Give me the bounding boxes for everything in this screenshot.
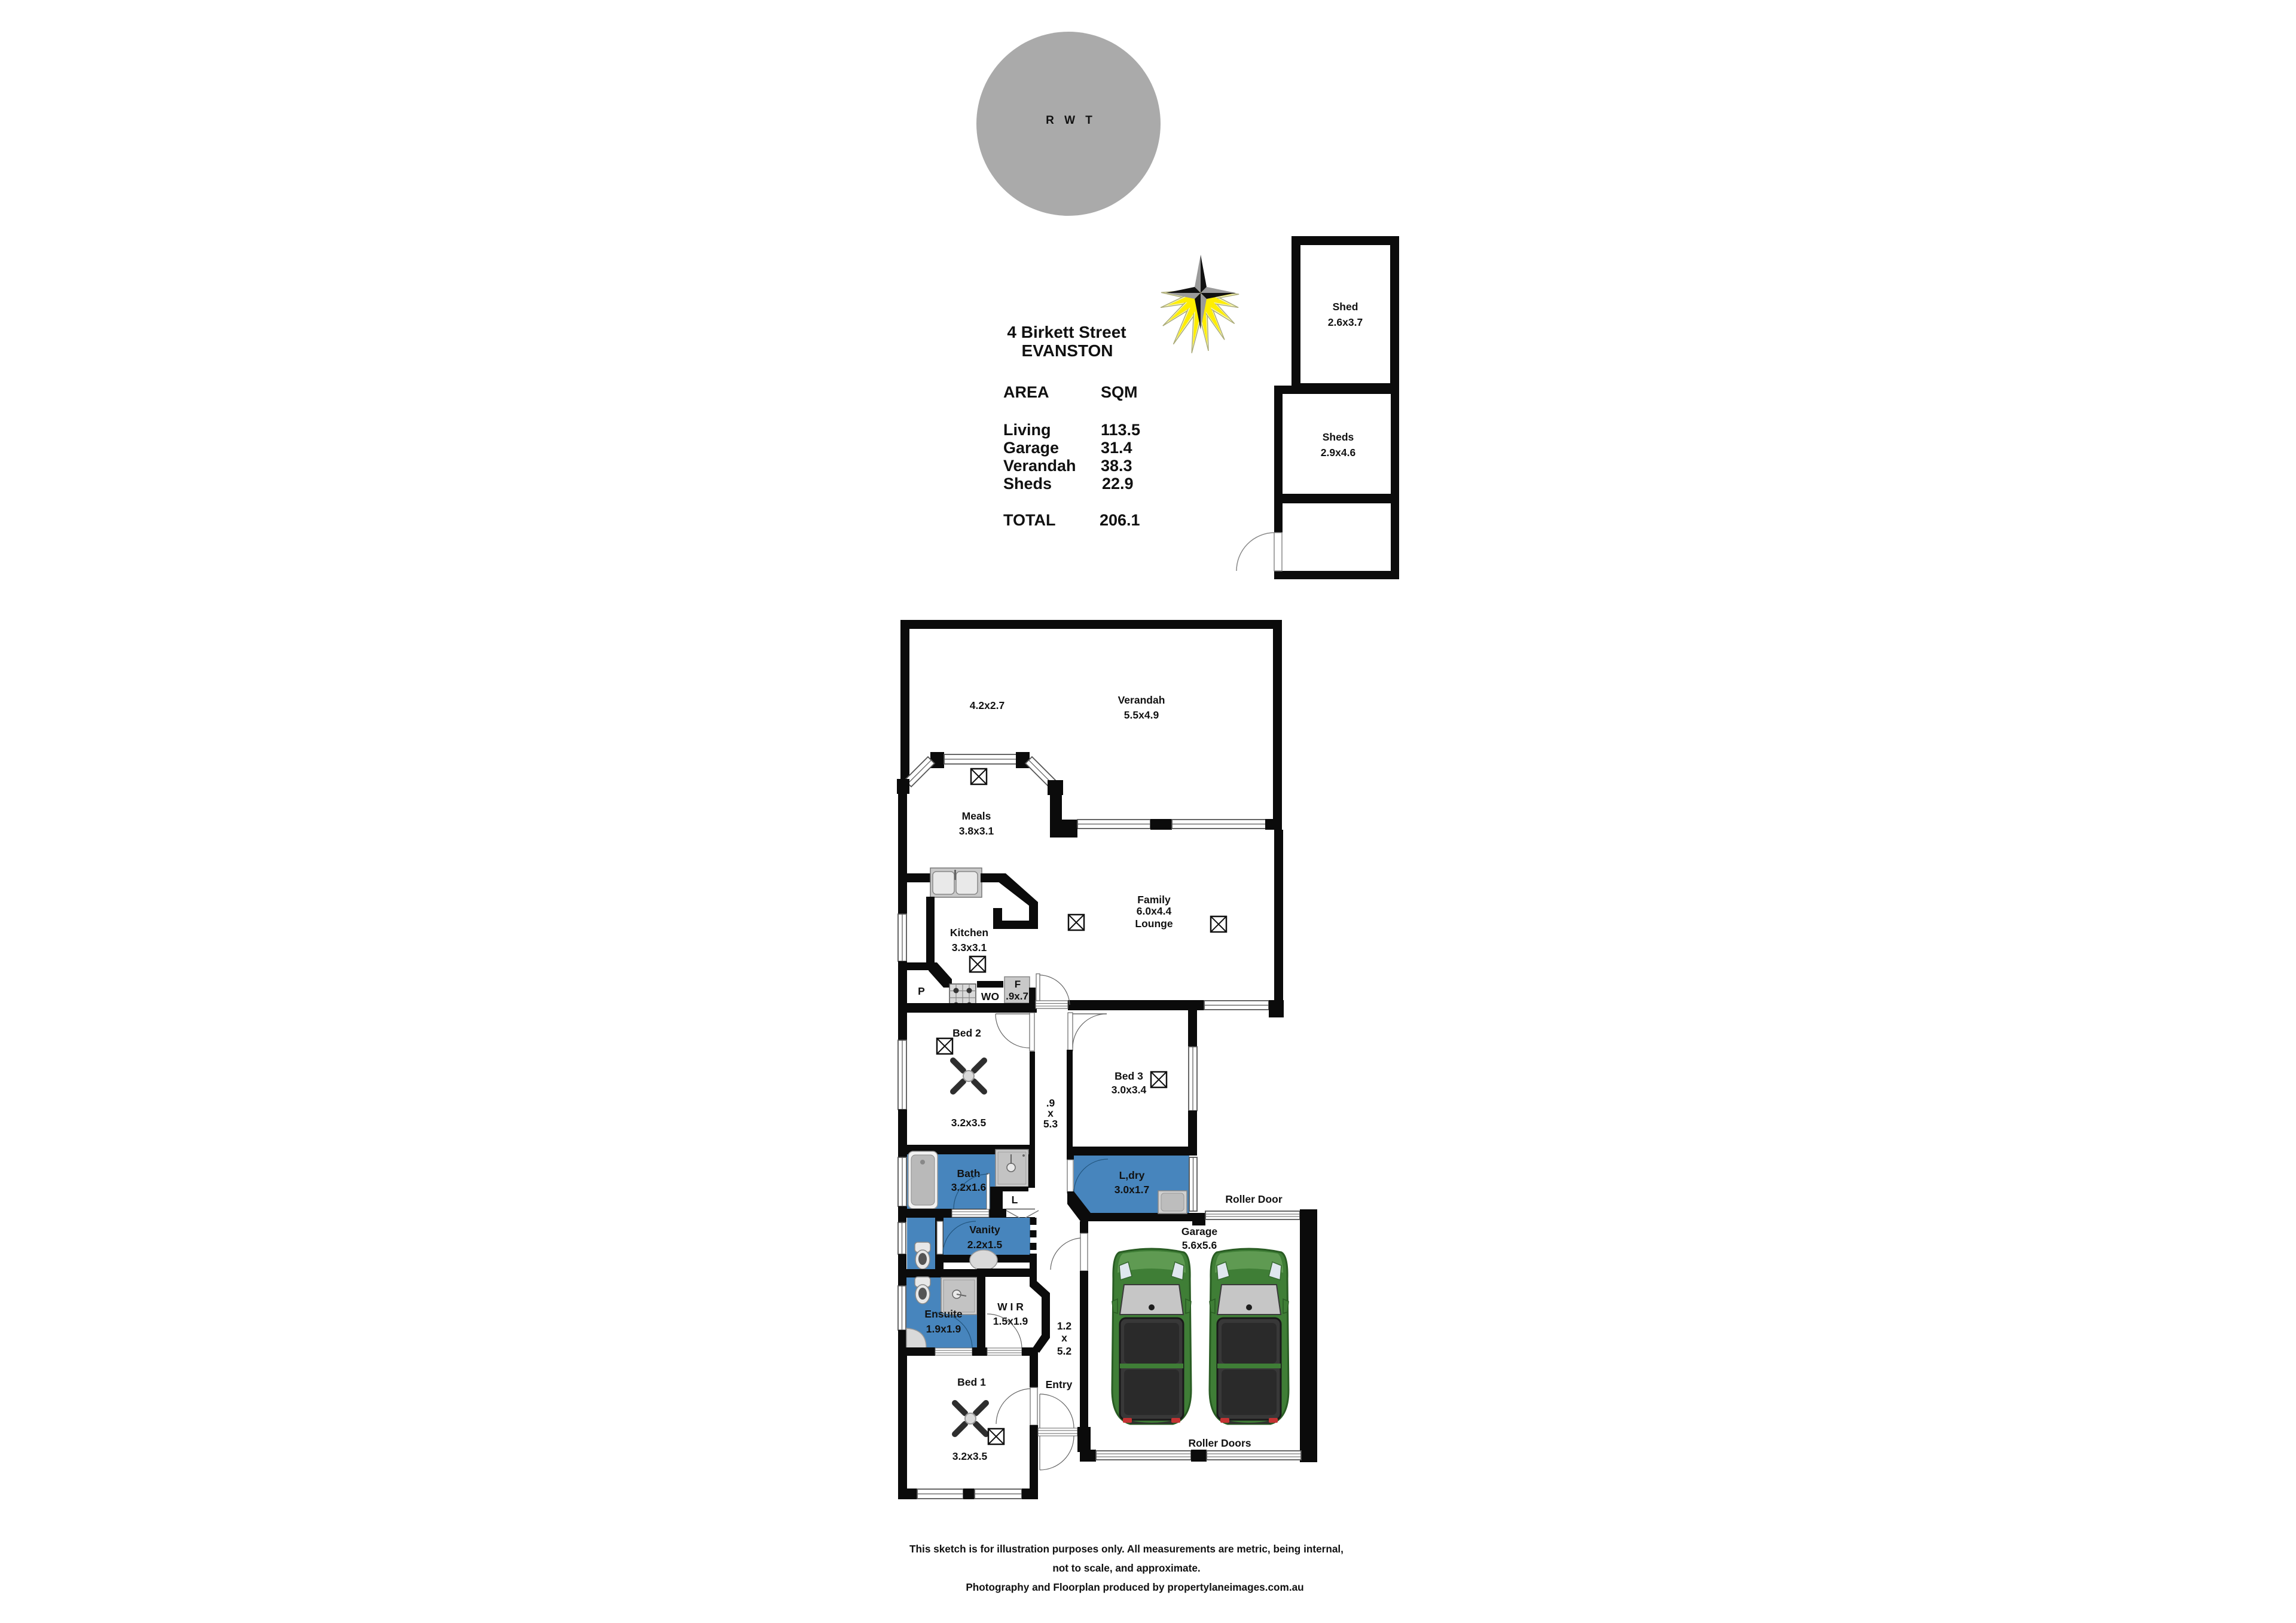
svg-text:3.0x1.7: 3.0x1.7	[1115, 1184, 1149, 1196]
svg-text:3.2x3.5: 3.2x3.5	[951, 1117, 987, 1129]
svg-text:Verandah: Verandah	[1003, 457, 1076, 475]
svg-text:TOTAL: TOTAL	[1003, 511, 1056, 529]
svg-text:Shed: Shed	[1333, 301, 1358, 313]
svg-text:Garage: Garage	[1181, 1225, 1218, 1237]
svg-text:x: x	[1048, 1107, 1054, 1119]
svg-text:38.3: 38.3	[1101, 457, 1132, 475]
svg-text:.9x.7: .9x.7	[1006, 991, 1028, 1002]
svg-text:22.9: 22.9	[1102, 475, 1134, 493]
svg-text:R W T: R W T	[1046, 114, 1096, 127]
svg-text:Roller Doors: Roller Doors	[1188, 1437, 1251, 1449]
svg-text:Bed 3: Bed 3	[1115, 1070, 1143, 1082]
svg-text:SQM: SQM	[1101, 383, 1138, 401]
svg-text:Meals: Meals	[962, 810, 991, 822]
svg-text:W I R: W I R	[997, 1301, 1024, 1313]
svg-text:5.2: 5.2	[1057, 1345, 1072, 1357]
svg-text:x: x	[1061, 1332, 1067, 1344]
svg-text:Bed 1: Bed 1	[957, 1376, 986, 1388]
svg-text:not to scale, and approximate.: not to scale, and approximate.	[1052, 1562, 1200, 1574]
svg-text:2.9x4.6: 2.9x4.6	[1321, 447, 1356, 459]
svg-text:3.3x3.1: 3.3x3.1	[952, 942, 987, 953]
svg-text:Verandah: Verandah	[1118, 694, 1165, 706]
svg-text:3.2x3.5: 3.2x3.5	[952, 1450, 988, 1462]
svg-text:L,dry: L,dry	[1119, 1169, 1145, 1181]
svg-text:5.6x5.6: 5.6x5.6	[1182, 1239, 1217, 1251]
svg-text:5.3: 5.3	[1043, 1118, 1058, 1130]
svg-text:4.2x2.7: 4.2x2.7	[970, 699, 1004, 711]
svg-text:Entry: Entry	[1046, 1379, 1073, 1390]
svg-text:EVANSTON: EVANSTON	[1022, 341, 1113, 360]
svg-text:Bath: Bath	[957, 1167, 981, 1179]
svg-text:L: L	[1012, 1194, 1018, 1206]
svg-text:113.5: 113.5	[1101, 421, 1140, 439]
svg-text:31.4: 31.4	[1101, 439, 1132, 457]
svg-text:2.6x3.7: 2.6x3.7	[1328, 316, 1363, 328]
svg-text:Roller Door: Roller Door	[1225, 1193, 1282, 1205]
svg-text:P: P	[918, 985, 925, 997]
svg-text:Sheds: Sheds	[1323, 431, 1354, 443]
svg-text:Garage: Garage	[1003, 439, 1059, 457]
svg-text:AREA: AREA	[1003, 383, 1049, 401]
svg-text:Ensuite: Ensuite	[924, 1308, 962, 1320]
svg-text:1.5x1.9: 1.5x1.9	[993, 1315, 1028, 1327]
svg-text:Kitchen: Kitchen	[950, 927, 988, 939]
svg-text:Vanity: Vanity	[969, 1224, 1000, 1236]
svg-text:WO: WO	[981, 991, 999, 1002]
svg-text:3.2x1.6: 3.2x1.6	[951, 1181, 987, 1193]
svg-text:Sheds: Sheds	[1003, 475, 1052, 493]
svg-text:F: F	[1015, 979, 1021, 990]
svg-text:Family: Family	[1137, 894, 1171, 906]
svg-text:This sketch is for illustratio: This sketch is for illustration purposes…	[909, 1543, 1344, 1555]
svg-text:6.0x4.4: 6.0x4.4	[1137, 905, 1172, 917]
svg-text:1.2: 1.2	[1057, 1320, 1072, 1332]
svg-text:5.5x4.9: 5.5x4.9	[1124, 709, 1159, 721]
svg-text:206.1: 206.1	[1100, 511, 1140, 529]
svg-text:Lounge: Lounge	[1135, 918, 1173, 930]
svg-text:3.0x3.4: 3.0x3.4	[1112, 1084, 1147, 1096]
svg-text:Photography and Floorplan prod: Photography and Floorplan produced by pr…	[966, 1581, 1303, 1593]
svg-text:3.8x3.1: 3.8x3.1	[959, 825, 994, 837]
svg-text:1.9x1.9: 1.9x1.9	[926, 1323, 961, 1335]
svg-text:2.2x1.5: 2.2x1.5	[967, 1239, 1003, 1251]
svg-text:Living: Living	[1003, 421, 1051, 439]
svg-text:4 Birkett Street: 4 Birkett Street	[1007, 323, 1126, 341]
svg-text:Bed 2: Bed 2	[952, 1027, 981, 1039]
